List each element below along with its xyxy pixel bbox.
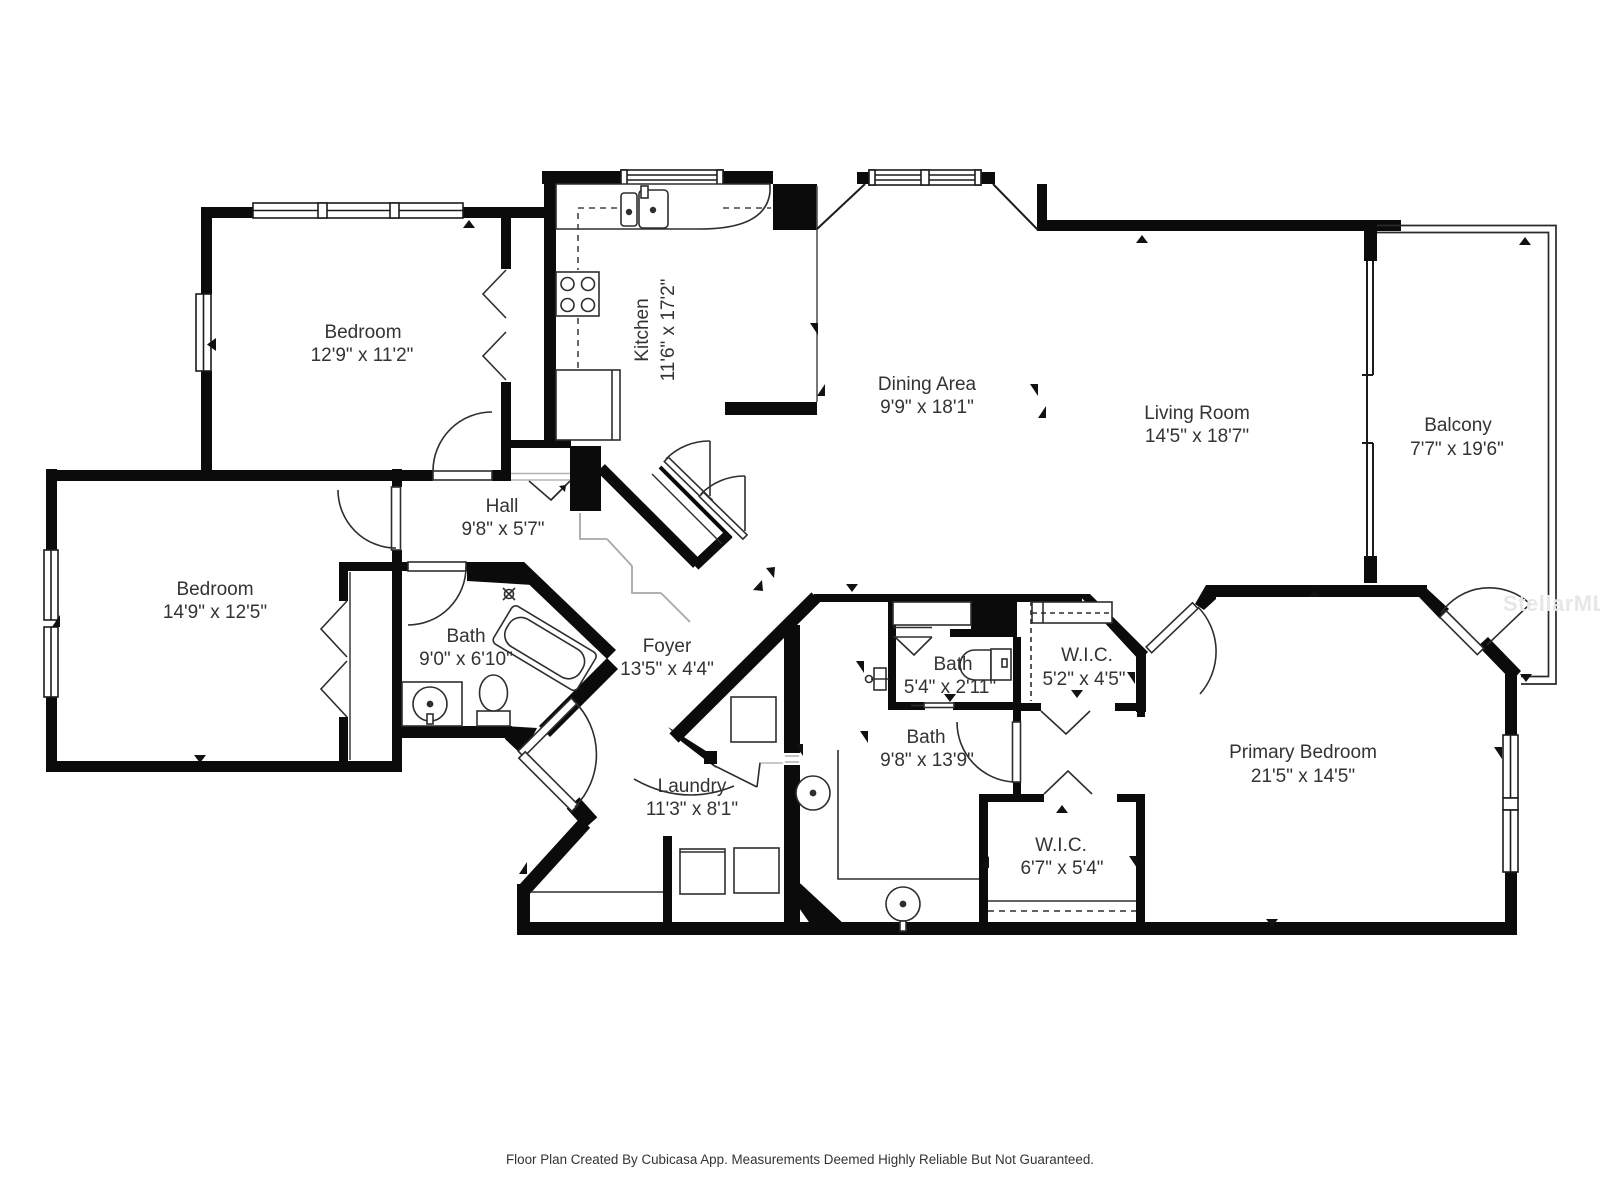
svg-text:Primary Bedroom: Primary Bedroom [1229,742,1377,763]
svg-text:6'7" x 5'4": 6'7" x 5'4" [1020,858,1103,879]
svg-text:21'5" x 14'5": 21'5" x 14'5" [1251,766,1355,787]
svg-text:5'2" x 4'5": 5'2" x 4'5" [1042,669,1125,690]
svg-text:Bedroom: Bedroom [176,579,253,600]
svg-text:7'7" x 19'6": 7'7" x 19'6" [1410,439,1504,460]
svg-text:Living Room: Living Room [1144,403,1250,424]
svg-text:9'8" x 13'9": 9'8" x 13'9" [880,750,974,771]
svg-text:Balcony: Balcony [1424,415,1492,436]
svg-text:14'5" x 18'7": 14'5" x 18'7" [1145,426,1249,447]
svg-text:12'9" x 11'2": 12'9" x 11'2" [311,345,414,366]
svg-text:9'0" x 6'10": 9'0" x 6'10" [419,649,513,670]
svg-text:Bedroom: Bedroom [324,322,401,343]
svg-text:5'4" x 2'11": 5'4" x 2'11" [904,677,996,698]
svg-text:W.I.C.: W.I.C. [1035,835,1087,856]
svg-text:Kitchen: Kitchen [632,298,653,361]
svg-text:Foyer: Foyer [643,636,692,657]
svg-text:9'9" x 18'1": 9'9" x 18'1" [880,397,974,418]
svg-text:11'6" x 17'2": 11'6" x 17'2" [658,279,679,382]
svg-text:Bath: Bath [906,727,945,748]
svg-text:Laundry: Laundry [658,776,727,797]
svg-text:11'3" x 8'1": 11'3" x 8'1" [646,799,738,820]
svg-text:Bath: Bath [446,626,485,647]
svg-text:Floor Plan Created By Cubicasa: Floor Plan Created By Cubicasa App. Meas… [506,1152,1094,1167]
svg-text:14'9" x 12'5": 14'9" x 12'5" [163,602,267,623]
svg-text:13'5" x 4'4": 13'5" x 4'4" [620,659,714,680]
svg-text:Dining Area: Dining Area [878,374,977,395]
svg-text:9'8" x 5'7": 9'8" x 5'7" [461,519,544,540]
svg-text:W.I.C.: W.I.C. [1061,645,1113,666]
svg-text:Bath: Bath [933,654,972,675]
svg-text:StellarMLS: StellarMLS [1503,591,1600,616]
svg-text:Hall: Hall [486,496,519,517]
